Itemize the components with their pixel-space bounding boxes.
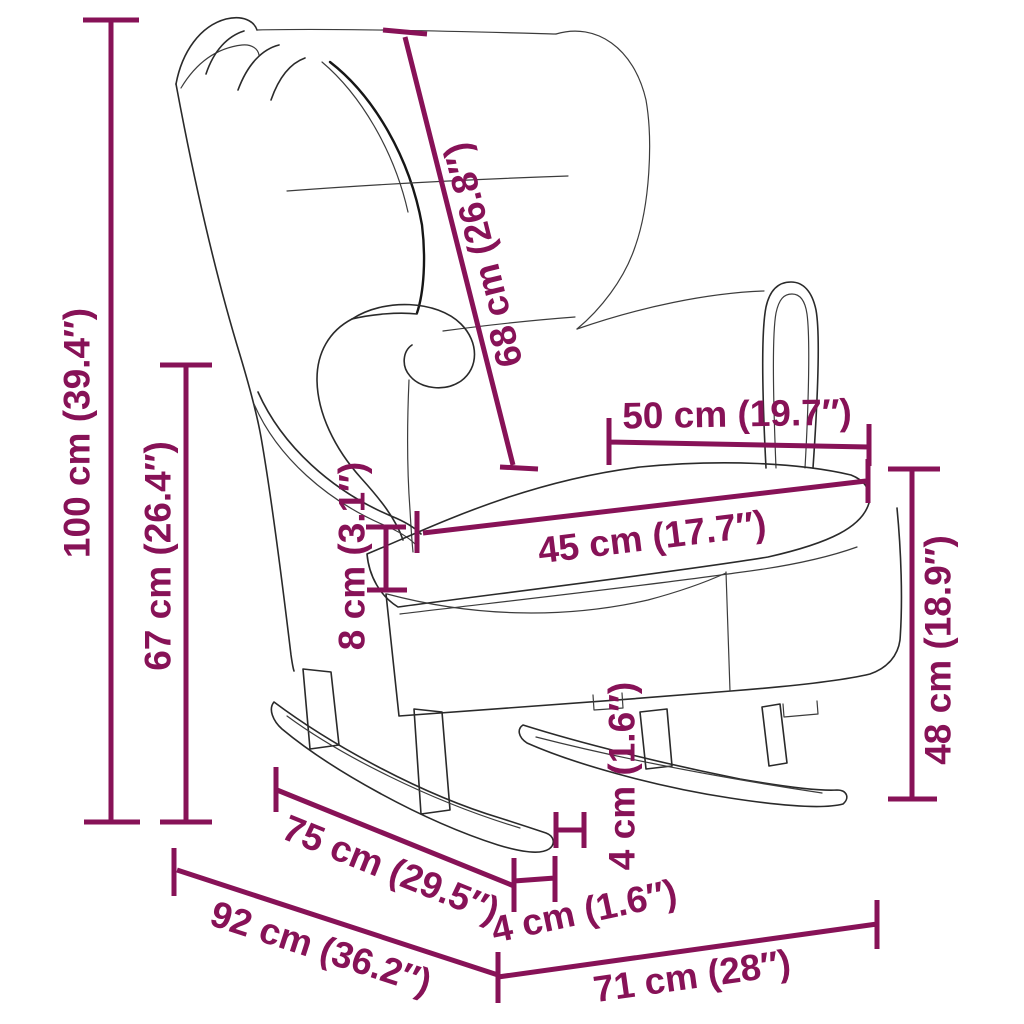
chair-arm-scroll (352, 305, 475, 388)
chair-headrest-roll (181, 45, 259, 88)
dim-backrest-label: 68 cm (26.8″) (435, 139, 530, 372)
dimension-diagram: 100 cm (39.4″) 67 cm (26.4″) 68 cm (26.8… (0, 0, 1024, 1024)
chair-leg-rear-left (303, 669, 339, 749)
chair-drawing (176, 18, 901, 852)
chair-base-notch-rear (783, 701, 818, 717)
chair-apron-top (387, 573, 726, 613)
dim-seat-depth-top-label: 50 cm (19.7″) (622, 391, 852, 436)
chair-right-arm-outer (763, 282, 819, 468)
dim-back-height-label: 67 cm (26.4″) (138, 441, 179, 671)
chair-right-wing-outline (556, 31, 650, 329)
chair-leg-front-right (640, 709, 672, 769)
dim-gap-side-label: 4 cm (1.6″) (602, 682, 643, 870)
dimension-lines (83, 20, 940, 1003)
chair-headrest-pleat-1 (206, 31, 244, 74)
chair-left-edge (176, 84, 294, 671)
chair-right-arm-inner (773, 294, 808, 468)
diagram-canvas: 100 cm (39.4″) 67 cm (26.4″) 68 cm (26.8… (0, 0, 1024, 1024)
dim-depth-label: 92 cm (36.2″) (205, 893, 436, 1003)
chair-left-wing-fold-inner (322, 62, 408, 212)
dim-seat-width-label: 45 cm (17.7″) (536, 503, 769, 572)
chair-base-corner-seam (726, 572, 730, 691)
dimension-labels: 100 cm (39.4″) 67 cm (26.4″) 68 cm (26.8… (57, 139, 959, 1010)
chair-headrest-pleat-3 (271, 58, 305, 100)
dim-seat-height-label: 48 cm (18.9″) (918, 535, 959, 765)
dim-gap-side (556, 812, 584, 848)
chair-rocker-left-inner (287, 716, 520, 828)
chair-rocker-right (519, 725, 847, 806)
dim-total-height-label: 100 cm (39.4″) (57, 308, 98, 558)
dim-cushion-label: 8 cm (3.1″) (332, 462, 373, 650)
chair-right-side-rail (577, 291, 764, 329)
chair-back-seam-upper (287, 176, 568, 191)
